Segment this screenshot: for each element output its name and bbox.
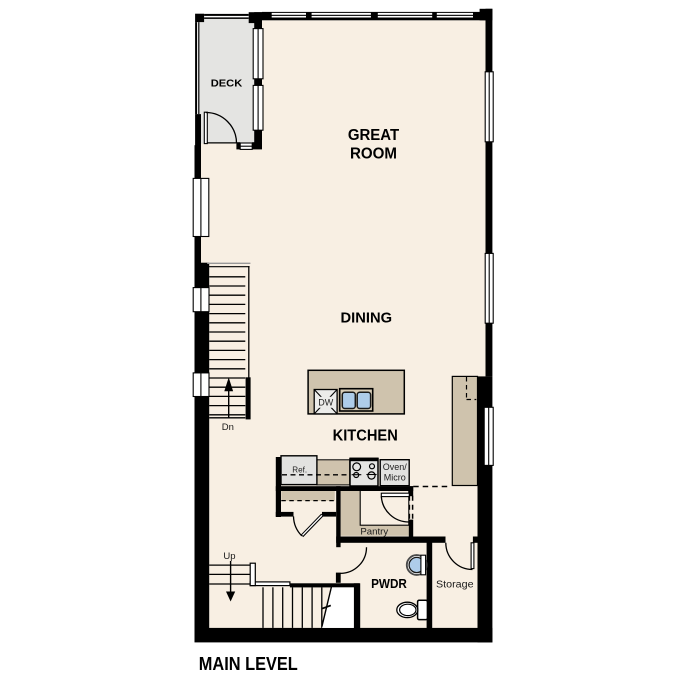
svg-text:ROOM: ROOM [350, 146, 397, 163]
svg-text:MAIN LEVEL: MAIN LEVEL [199, 653, 298, 674]
svg-text:DW: DW [318, 398, 333, 408]
svg-text:Dn: Dn [222, 422, 234, 433]
svg-text:Ref.: Ref. [292, 465, 307, 475]
svg-text:Oven/: Oven/ [383, 462, 408, 472]
svg-text:Up: Up [223, 551, 235, 562]
svg-text:DINING: DINING [341, 310, 393, 327]
svg-text:KITCHEN: KITCHEN [333, 427, 398, 444]
svg-text:PWDR: PWDR [371, 576, 407, 591]
svg-text:GREAT: GREAT [348, 127, 400, 144]
svg-text:Pantry: Pantry [360, 526, 388, 536]
svg-text:DECK: DECK [211, 78, 243, 90]
svg-text:Storage: Storage [436, 579, 474, 590]
svg-text:Micro: Micro [384, 473, 406, 483]
